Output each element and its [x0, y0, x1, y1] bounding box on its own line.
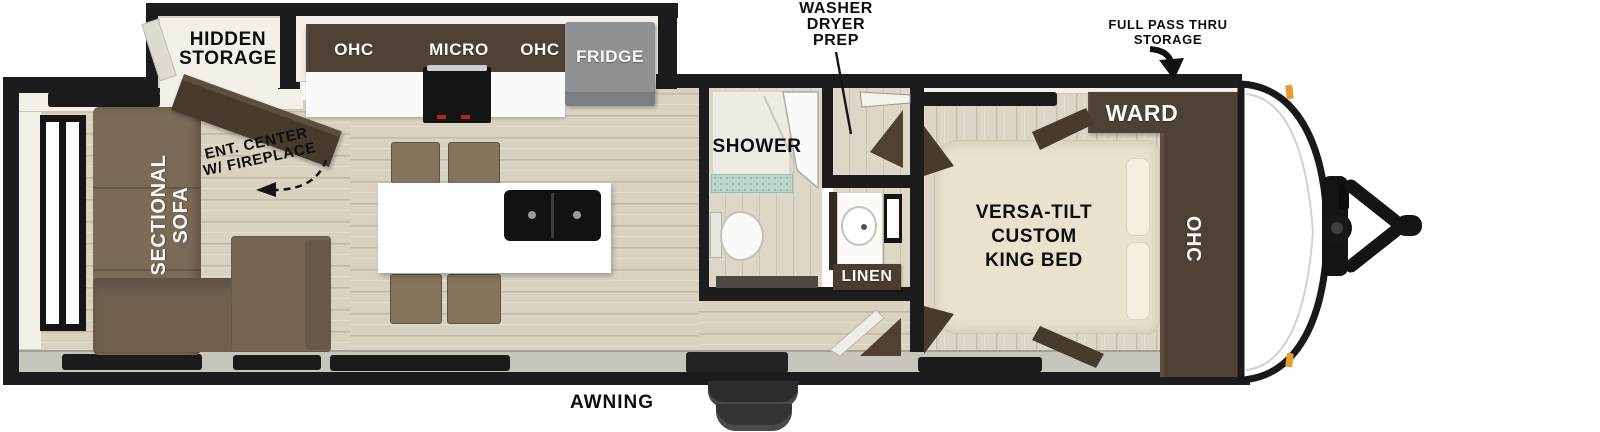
front-cap-inner-line — [1246, 94, 1313, 370]
sink-drain — [528, 211, 536, 219]
sink-divider — [551, 193, 554, 238]
bottom-exterior-wall — [3, 372, 1250, 385]
shower-wd-divider-wall — [822, 84, 833, 182]
bed-label-line1: VERSA-TILT — [976, 201, 1092, 225]
hitch-a-frame-bar — [1351, 186, 1399, 224]
entry-step-lower — [716, 404, 792, 431]
bed-label: VERSA-TILT CUSTOM KING BED — [934, 200, 1134, 274]
micro-text: MICRO — [429, 40, 489, 60]
bed-label-line3: KING BED — [985, 249, 1083, 273]
vanity-mirror — [884, 194, 902, 243]
hidden-storage-label-line2: STORAGE — [179, 49, 277, 68]
linen-cabinet: LINEN — [833, 264, 901, 290]
pass-thru-line1: FULL PASS THRU — [1108, 17, 1227, 32]
vanity-divider-wall — [829, 192, 837, 270]
pass-thru-line2: STORAGE — [1134, 32, 1202, 47]
rear-exterior-wall — [3, 77, 19, 384]
ohc-left-label: OHC — [326, 40, 382, 60]
hitch-crossbar — [1322, 176, 1348, 276]
wd-label-line1: WASHER — [799, 1, 873, 17]
baggage-door-slot — [330, 355, 510, 371]
rear-wall-liner — [17, 90, 41, 350]
double-sink — [504, 190, 601, 241]
trailer-hitch — [1322, 176, 1422, 276]
top-wall-main — [656, 74, 1242, 88]
fridge-text: FRIDGE — [576, 47, 644, 67]
dining-chair — [447, 274, 501, 324]
stove-cooktop — [423, 67, 491, 123]
bath-left-wall — [699, 82, 709, 300]
mirror-glass — [887, 199, 899, 238]
vanity-sink — [841, 206, 877, 246]
entry-door-opening — [686, 352, 788, 373]
wardrobe-label: WARD — [1092, 99, 1192, 127]
shower-text: SHOWER — [712, 136, 801, 158]
hitch-jack-post — [1339, 184, 1349, 210]
hitch-jack-wheel — [1322, 213, 1352, 243]
sofa-armrest — [305, 240, 331, 350]
dining-chair — [391, 142, 440, 184]
hidden-storage-label: HIDDEN STORAGE — [160, 26, 296, 72]
top-wall-left — [3, 77, 160, 93]
microwave-label: MICRO — [426, 40, 492, 60]
awning-label: AWNING — [564, 392, 660, 414]
bedroom-top-window — [922, 92, 1057, 106]
bedroom-ohc-text: OHC — [1182, 216, 1205, 262]
ohc-right-label: OHC — [512, 40, 568, 60]
bed-label-line2: CUSTOM — [991, 225, 1077, 249]
pass-thru-arrow-stem — [1150, 49, 1171, 62]
living-top-window — [48, 92, 160, 107]
hallway-floor — [699, 300, 910, 352]
marker-light-icon — [1285, 353, 1294, 368]
sink-drain — [573, 211, 581, 219]
window-pane — [46, 122, 59, 324]
shower-room-shelf — [716, 276, 818, 288]
shower-pan — [711, 174, 793, 193]
fridge-label: FRIDGE — [567, 46, 653, 68]
floorplan-canvas: SECTIONAL SOFA ENT. CENTER W/ FIREPLACE … — [0, 0, 1600, 432]
hitch-jack-hub — [1331, 222, 1343, 234]
sofa-label-line2: SOFA — [170, 187, 192, 244]
baggage-door-slot — [62, 354, 202, 370]
bedroom-partition-wall — [910, 80, 924, 352]
hidden-storage-label-line1: HIDDEN — [190, 30, 266, 49]
stove-knob — [461, 115, 470, 119]
marker-light-icon — [1285, 85, 1294, 100]
pass-thru-storage-label: FULL PASS THRU STORAGE — [1106, 16, 1230, 48]
awning-text: AWNING — [570, 392, 654, 414]
ohc-right-text: OHC — [520, 40, 560, 60]
wd-label-line3: PREP — [813, 33, 859, 49]
washer-dryer-prep-label: WASHER DRYER PREP — [786, 0, 886, 50]
wd-closet-bottom-wall — [822, 175, 923, 188]
dining-chair — [448, 142, 500, 184]
sink-drain — [861, 224, 867, 230]
front-cap — [1241, 84, 1327, 380]
stove-knob — [437, 115, 446, 119]
baggage-door-slot — [233, 355, 321, 370]
hitch-coupler — [1396, 215, 1422, 236]
rear-window — [40, 115, 86, 331]
bedroom-bottom-window — [918, 357, 1042, 372]
ward-text: WARD — [1106, 100, 1179, 127]
linen-text: LINEN — [842, 268, 893, 286]
dining-chair — [390, 274, 442, 324]
bedroom-ohc-label: OHC — [1180, 199, 1206, 279]
sofa-label-line1: SECTIONAL — [148, 155, 170, 276]
hitch-a-frame-bar — [1351, 228, 1399, 266]
wd-label-line2: DRYER — [807, 17, 865, 33]
shower-label: SHOWER — [709, 136, 805, 158]
stove-handle — [427, 65, 487, 71]
ohc-left-text: OHC — [334, 40, 374, 60]
window-pane — [66, 122, 79, 324]
washer-dryer-closet-floor — [833, 88, 910, 175]
